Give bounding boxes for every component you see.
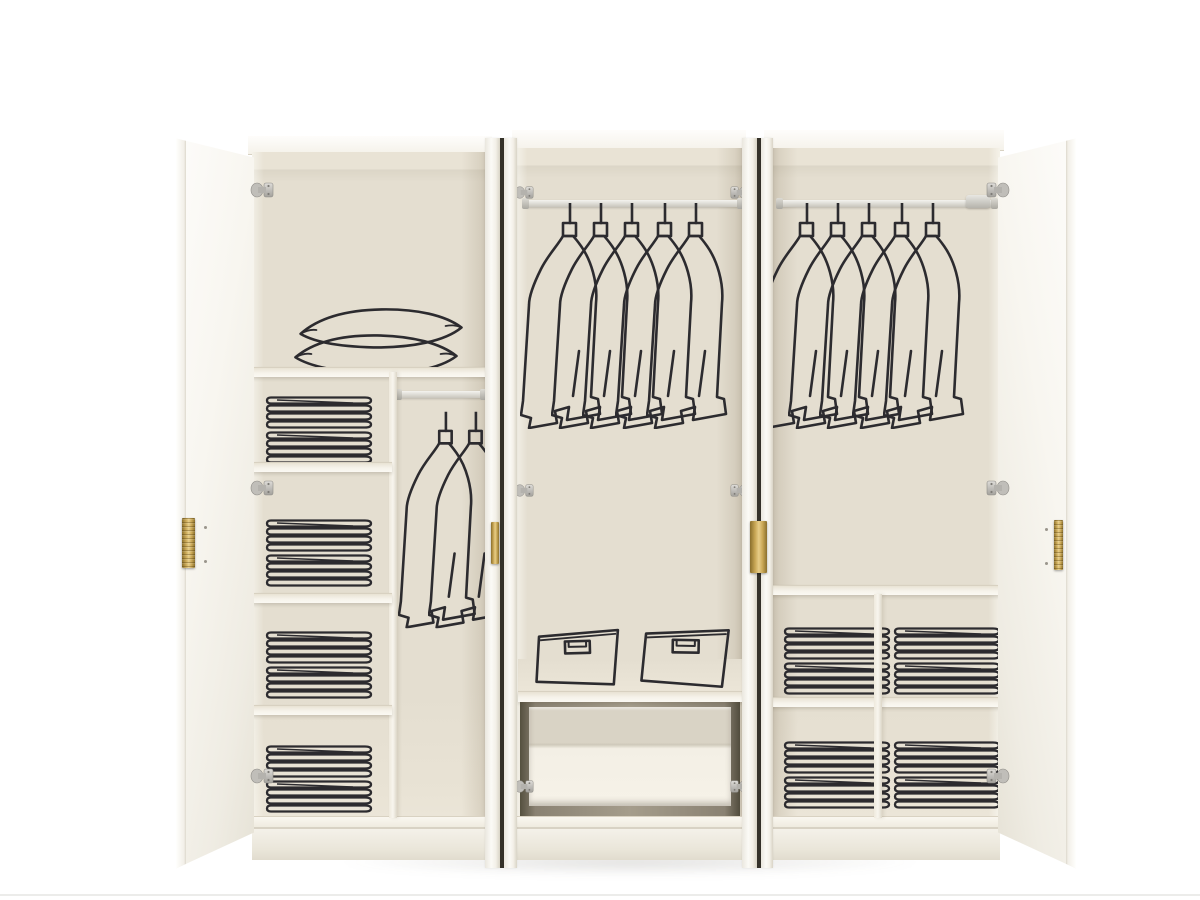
- garment-illustration: [646, 203, 742, 429]
- folded-towels-illustration: [263, 431, 375, 464]
- handle-screw: [1045, 562, 1048, 565]
- open-door-far-right: [998, 134, 1076, 870]
- folded-towels-illustration: [263, 780, 375, 813]
- brass-door-handle: [182, 518, 195, 568]
- drawer-front: [529, 707, 731, 806]
- folded-towels-illustration: [263, 554, 375, 587]
- brass-door-handle: [491, 522, 499, 564]
- studio-floor-line: [0, 894, 1200, 896]
- shelf: [252, 367, 490, 377]
- brass-door-handle: [1054, 520, 1063, 570]
- handle-screw: [1045, 528, 1048, 531]
- shelf: [518, 691, 744, 702]
- folded-towels-illustration: [891, 662, 1003, 695]
- hinge-icon: [249, 479, 275, 497]
- hinge-icon: [249, 767, 275, 785]
- ajar-door-right-pair-b: [761, 138, 773, 868]
- hinge-icon: [249, 181, 275, 199]
- open-door-far-left: [176, 134, 254, 870]
- drawer-opening: [520, 701, 740, 816]
- handle-screw: [204, 560, 207, 563]
- hinge-icon: [985, 181, 1011, 199]
- vertical-divider: [874, 594, 882, 818]
- brass-door-handle: [750, 521, 767, 573]
- towel-compartment: [263, 396, 381, 464]
- shelf: [770, 585, 1000, 595]
- folded-towels-illustration: [263, 519, 375, 552]
- handle-screw: [204, 526, 207, 529]
- shelf: [770, 697, 1000, 707]
- hinge-icon: [985, 767, 1011, 785]
- folded-towels-illustration: [263, 666, 375, 699]
- ajar-door-left-pair-a: [485, 138, 500, 868]
- folded-towels-illustration: [263, 396, 375, 429]
- towel-compartment: [263, 519, 381, 587]
- ajar-door-right-pair-a: [504, 138, 517, 868]
- towel-compartment: [263, 631, 381, 699]
- folded-towels-illustration: [263, 745, 375, 778]
- storage-box-illustration: [532, 619, 626, 689]
- base-plinth: [252, 827, 1000, 860]
- garment-illustration: [883, 203, 979, 429]
- storage-box-illustration: [635, 617, 738, 690]
- shelf: [252, 705, 392, 715]
- ajar-door-left-pair-b: [742, 138, 757, 868]
- shelf: [252, 593, 392, 603]
- hinge-icon: [985, 479, 1011, 497]
- wardrobe-product-photo: [0, 0, 1200, 900]
- folded-towels-illustration: [891, 627, 1003, 660]
- folded-towels-illustration: [263, 631, 375, 664]
- towel-cubby: [891, 627, 1009, 695]
- shelf: [252, 462, 392, 472]
- towel-compartment: [263, 745, 381, 813]
